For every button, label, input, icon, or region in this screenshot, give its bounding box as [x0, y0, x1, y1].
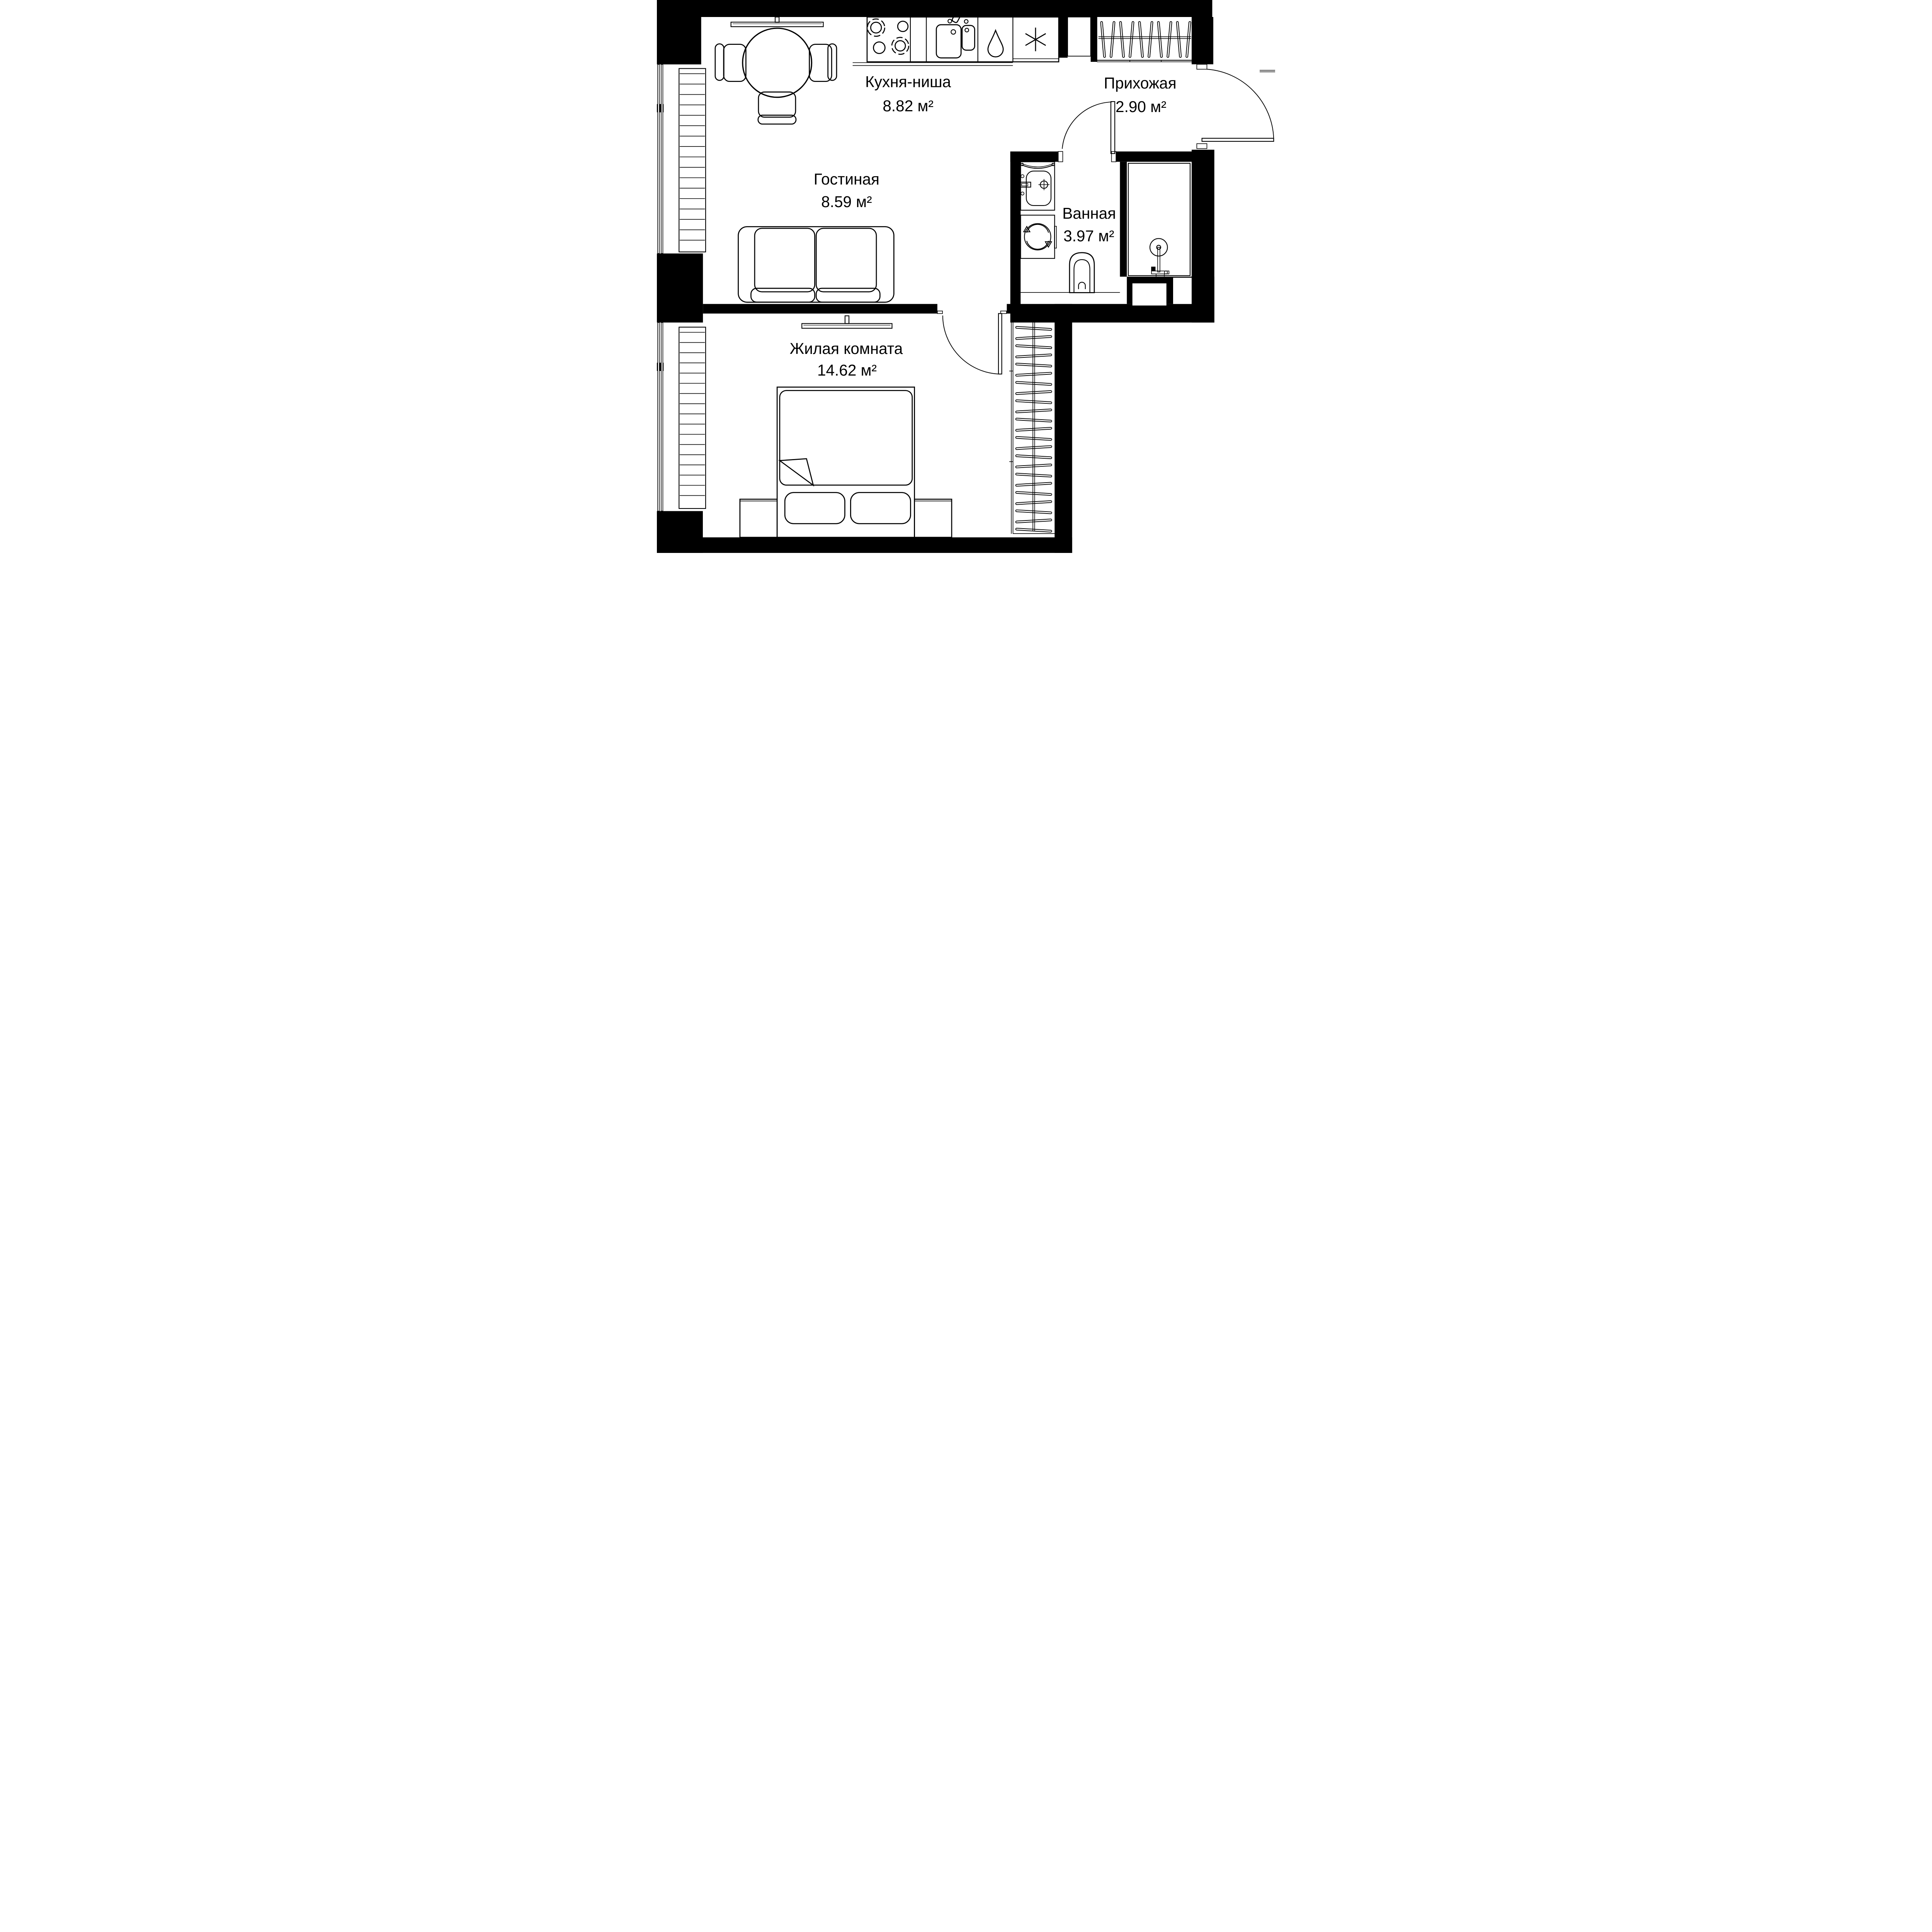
room-label-bedroom: Жилая комната — [790, 340, 903, 357]
shower-icon — [1128, 163, 1190, 277]
wall-entrance-pier — [1192, 17, 1213, 64]
window-living — [658, 65, 663, 253]
stove-burners-icon — [867, 19, 909, 54]
sofa-icon — [738, 227, 894, 302]
room-area-bedroom: 14.62 м² — [817, 361, 877, 379]
bedroom-wardrobe — [1009, 314, 1054, 534]
wall-top — [657, 0, 1212, 17]
bathroom-sink-icon — [1020, 162, 1055, 210]
wall-right-lower — [1054, 304, 1072, 553]
washing-machine-icon — [1020, 215, 1056, 259]
floor-plan: Кухня-ниша 8.82 м² Прихожая 2.90 м² Гост… — [657, 0, 1275, 553]
entrance-door-arc — [1207, 69, 1274, 138]
nightstand-left — [740, 499, 777, 537]
wall-niche-pier — [1091, 17, 1097, 62]
dining-set — [715, 28, 837, 124]
room-label-living: Гостиная — [814, 170, 879, 188]
floor-plan-canvas: Кухня-ниша 8.82 м² Прихожая 2.90 м² Гост… — [657, 0, 1275, 553]
exterior-corridor-line — [1260, 70, 1275, 72]
mattress — [780, 391, 912, 485]
fridge-snowflake-icon — [1026, 27, 1046, 51]
wall-bathroom-top-left — [1010, 151, 1058, 162]
chair-icon — [828, 44, 837, 80]
nightstand-right — [915, 499, 952, 537]
wall-left-middle-block — [657, 253, 703, 323]
bedroom-door-leaf — [998, 313, 1002, 374]
shaft-niche-left — [1133, 283, 1167, 305]
wall-bottom — [657, 537, 1072, 553]
shower-glass — [1128, 163, 1190, 276]
coat-hangers-icon — [1100, 21, 1191, 57]
wardrobe-hangers-icon — [1015, 317, 1051, 532]
tv-bedroom-icon — [802, 316, 892, 328]
wall-bath-shower-divider — [1120, 162, 1127, 277]
blanket-fold — [780, 459, 813, 485]
room-label-hallway: Прихожая — [1104, 74, 1177, 92]
shaft-niche-right — [1173, 278, 1192, 304]
pillow — [850, 493, 910, 524]
pillow — [785, 493, 845, 524]
dining-table-icon — [743, 28, 812, 97]
radiator-bedroom — [679, 327, 706, 509]
window-bedroom — [658, 323, 663, 511]
bed-icon — [777, 387, 914, 537]
bedroom-door-icon — [937, 311, 1007, 374]
room-label-kitchen: Кухня-ниша — [865, 73, 951, 90]
dishwasher-drop-icon — [988, 31, 1003, 57]
toilet-icon — [1070, 253, 1094, 293]
room-label-bathroom: Ванная — [1062, 204, 1116, 222]
chair-icon — [759, 92, 796, 117]
room-labels: Кухня-ниша 8.82 м² Прихожая 2.90 м² Гост… — [790, 73, 1177, 379]
bathroom-door-arc — [1062, 102, 1112, 149]
hallway-wardrobe — [1097, 17, 1192, 62]
room-area-kitchen: 8.82 м² — [883, 97, 933, 115]
wall-kitchen-pier — [1059, 17, 1068, 58]
wall-right — [1192, 150, 1214, 322]
room-area-bathroom: 3.97 м² — [1063, 227, 1114, 245]
wall-living-bedroom — [703, 304, 937, 314]
tv-console-icon — [731, 17, 823, 27]
bedroom-door-arc — [943, 316, 998, 374]
entrance-door-leaf — [1202, 138, 1274, 141]
wall-top-left-block — [657, 17, 701, 65]
kitchen-duct-niche — [1068, 17, 1091, 56]
bathroom-door-icon — [1058, 102, 1116, 162]
radiator-living — [679, 68, 706, 252]
bathroom-door-leaf — [1111, 102, 1115, 153]
entrance-door-icon — [1197, 64, 1274, 148]
chair-icon — [715, 44, 724, 80]
room-area-hallway: 2.90 м² — [1116, 98, 1166, 116]
room-area-living: 8.59 м² — [821, 193, 872, 211]
chair-icon — [758, 115, 796, 124]
wall-bathroom-left — [1010, 151, 1021, 313]
